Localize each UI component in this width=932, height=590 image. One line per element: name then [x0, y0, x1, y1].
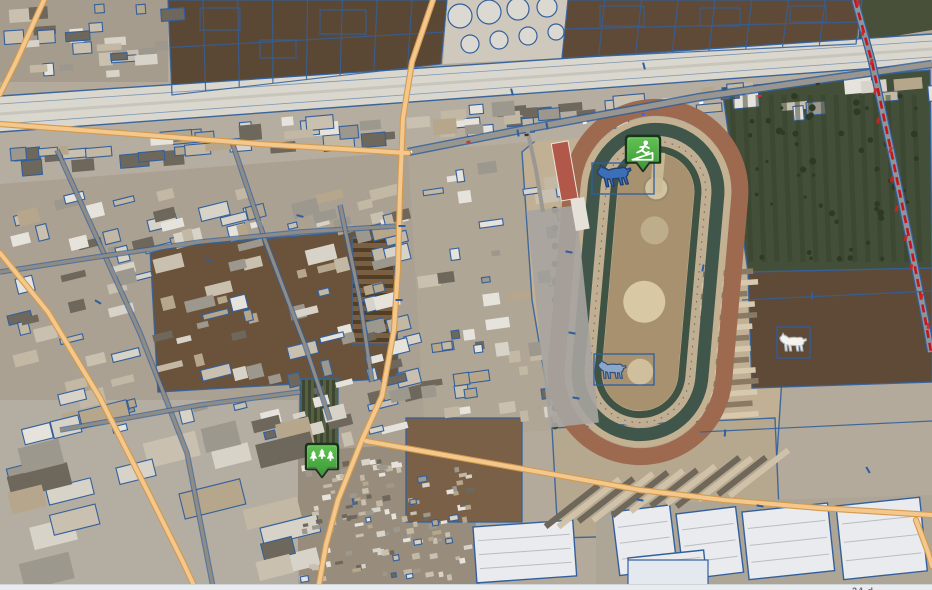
horse-field — [748, 268, 932, 388]
map-viewport[interactable]: 24 d — [0, 0, 932, 590]
bottom-bar-text: 24 d — [852, 586, 874, 590]
map-canvas[interactable] — [0, 0, 932, 590]
land-regions — [0, 0, 932, 590]
bottom-bar: 24 d — [0, 584, 932, 590]
